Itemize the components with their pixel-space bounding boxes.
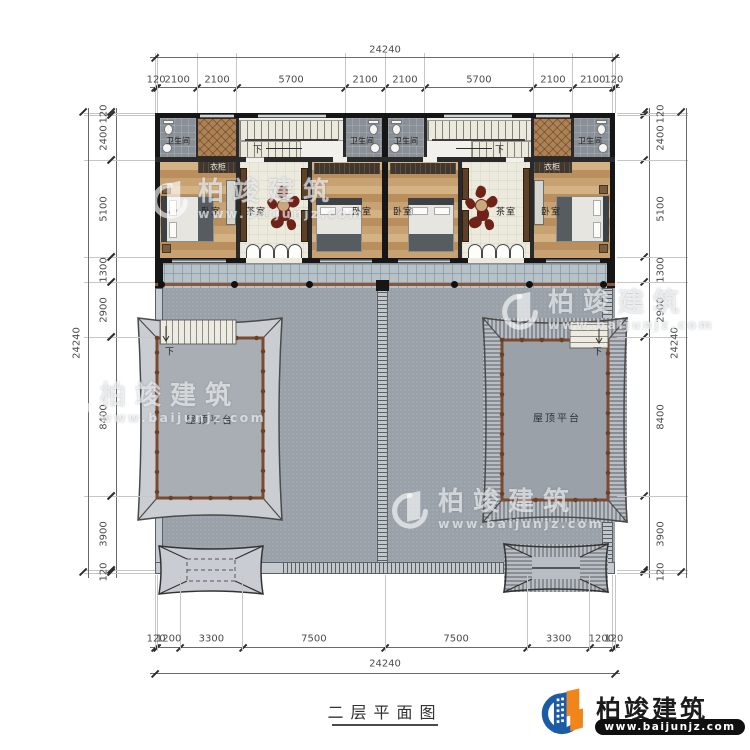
french-door — [496, 244, 510, 258]
nightstand — [162, 185, 171, 194]
dim-label: 2900 — [656, 297, 667, 322]
stairwell-1 — [239, 120, 345, 141]
french-door — [510, 244, 524, 258]
dim-label: 3900 — [656, 521, 667, 546]
bed-throw — [317, 234, 361, 251]
dim-label: 2100 — [204, 75, 229, 86]
column — [158, 281, 165, 288]
window — [444, 114, 512, 118]
room-label-tearoom: 茶室 — [246, 205, 266, 218]
roof-terrace-label: 屋顶平台 — [186, 412, 234, 427]
dim-line — [150, 57, 620, 58]
room-label-bathroom: 卫生间 — [394, 136, 418, 147]
dim-line — [84, 573, 155, 574]
tea-plant-decor — [268, 186, 300, 234]
dim-label: 24240 — [369, 659, 401, 670]
dim-line — [617, 282, 688, 283]
toilet-icon — [164, 124, 173, 135]
french-door — [482, 244, 496, 258]
brand-url-bar: www.baijunjz.com — [595, 719, 745, 735]
dim-label: 24240 — [670, 327, 681, 359]
column — [451, 281, 458, 288]
dim-label: 120 — [604, 75, 623, 86]
dim-label: 2100 — [164, 75, 189, 86]
partition — [458, 162, 462, 258]
wall-mid — [264, 157, 333, 162]
partition — [531, 118, 534, 157]
partition — [236, 162, 240, 258]
walkway-stub — [607, 263, 615, 290]
bedroom-3-closet — [390, 163, 456, 174]
dim-line — [617, 496, 688, 497]
dim-label: 120 — [99, 105, 110, 124]
dim-label: 5100 — [99, 196, 110, 221]
dim-line — [84, 496, 155, 497]
dim-label: 2400 — [99, 125, 110, 150]
porch-roof-left — [153, 538, 269, 600]
column — [306, 281, 313, 288]
floor-plan-canvas: 卫生间 卫生间 卫生间 卫生间 衣柜 衣柜 下 下 卧室 茶室 卧室 卧室 茶室… — [0, 0, 750, 750]
wardrobe-1 — [197, 118, 237, 157]
stairs-down-label: 下 — [495, 143, 505, 156]
dim-label: 7500 — [443, 634, 468, 645]
bed-headboard — [408, 198, 454, 205]
bed-pillow — [412, 207, 428, 215]
french-door — [246, 244, 260, 258]
bed-pillow — [169, 200, 177, 216]
wall-left — [155, 113, 160, 263]
dim-label: 5700 — [278, 75, 303, 86]
dim-label: 8400 — [99, 404, 110, 429]
dim-line — [424, 53, 425, 113]
dim-label: 1200 — [156, 634, 181, 645]
room-label-wardrobe: 衣柜 — [544, 162, 560, 173]
bedroom-2-closet — [314, 163, 380, 174]
dim-label: 120 — [604, 634, 623, 645]
window-glass — [546, 260, 600, 261]
column — [526, 281, 533, 288]
dim-label: 1300 — [99, 257, 110, 282]
window — [258, 114, 326, 118]
dim-label: 120 — [656, 105, 667, 124]
partition — [196, 118, 198, 157]
dim-label: 24240 — [369, 45, 401, 56]
window-glass — [398, 260, 450, 261]
nightstand — [162, 244, 171, 253]
window — [200, 114, 234, 118]
dim-label: 3900 — [99, 521, 110, 546]
bed-pillow — [593, 222, 601, 238]
brand-logo-icon — [534, 683, 592, 743]
dim-line — [84, 282, 155, 283]
french-door — [274, 244, 288, 258]
dim-label: 1300 — [656, 257, 667, 282]
tea-cabinet — [523, 168, 530, 242]
dim-label: 120 — [147, 75, 166, 86]
porch-roof-right — [498, 536, 614, 598]
bed-pillow — [434, 207, 450, 215]
bed-headboard — [161, 196, 167, 242]
bed-throw — [409, 234, 453, 251]
partition — [308, 162, 312, 258]
pavilion-down-label: 下 — [165, 345, 175, 358]
stair-rail-2 — [432, 139, 525, 141]
wall-mid — [437, 157, 506, 162]
dim-line — [527, 575, 528, 651]
dim-line — [236, 53, 237, 113]
dim-line — [84, 257, 155, 258]
roof-terrace-label: 屋顶平台 — [533, 410, 581, 425]
stairs-arrow — [266, 148, 302, 149]
dim-line — [649, 108, 650, 578]
wall-mid — [524, 157, 615, 162]
partition — [236, 118, 239, 157]
dim-label: 24240 — [72, 327, 83, 359]
dim-line — [84, 570, 155, 571]
french-door — [288, 244, 302, 258]
dim-line — [533, 53, 534, 113]
room-label-bathroom: 卫生间 — [350, 136, 374, 147]
dim-label: 2900 — [99, 297, 110, 322]
stairwell-1-lower — [239, 141, 301, 158]
window-glass — [320, 260, 372, 261]
dim-line — [572, 53, 573, 113]
wall-mid — [347, 157, 423, 162]
dim-line — [116, 108, 117, 578]
nightstand — [599, 185, 608, 194]
stairs-arrow — [456, 148, 492, 149]
tea-cabinet — [301, 168, 308, 200]
tv-cabinet — [534, 180, 544, 225]
wall-mid — [155, 157, 246, 162]
dim-label: 2100 — [580, 75, 605, 86]
room-label-bathroom: 卫生间 — [578, 136, 602, 147]
dim-line — [617, 570, 688, 571]
dim-line — [385, 575, 386, 651]
dim-label: 120 — [656, 562, 667, 581]
room-label-bedroom: 卧室 — [352, 205, 372, 218]
dim-line — [88, 108, 89, 578]
room-label-bedroom: 卧室 — [393, 205, 413, 218]
terrace-divider — [377, 290, 388, 566]
tea-plant-decor — [466, 186, 498, 234]
partition — [424, 118, 427, 157]
toilet-icon — [597, 124, 606, 135]
room-label-bedroom: 卧室 — [541, 205, 561, 218]
dim-label: 120 — [99, 562, 110, 581]
divider-pier — [376, 280, 389, 291]
column — [600, 281, 607, 288]
room-label-bedroom: 卧室 — [201, 205, 221, 218]
window-glass — [172, 260, 226, 261]
dim-line — [84, 160, 155, 161]
dim-line — [197, 53, 198, 113]
bed-pillow — [320, 207, 336, 215]
dim-line — [84, 113, 155, 114]
dim-label: 5100 — [656, 196, 667, 221]
dim-line — [686, 108, 687, 578]
dim-line — [150, 673, 620, 674]
nightstand — [599, 244, 608, 253]
wall-right — [610, 113, 615, 263]
tea-cabinet — [301, 210, 308, 242]
partition — [530, 162, 534, 258]
dim-line — [385, 53, 386, 113]
bed-headboard — [603, 196, 609, 242]
dim-line — [242, 575, 243, 651]
toilet-icon — [369, 124, 378, 135]
title-underline — [332, 724, 438, 726]
dim-label: 2100 — [392, 75, 417, 86]
dim-line — [617, 160, 688, 161]
bed-pillow — [169, 222, 177, 238]
french-door — [468, 244, 482, 258]
terrace-bottom-coping — [283, 562, 507, 574]
column — [231, 281, 238, 288]
dim-label: 2100 — [352, 75, 377, 86]
dim-label: 8400 — [656, 404, 667, 429]
dim-line — [617, 257, 688, 258]
room-label-bathroom: 卫生间 — [166, 136, 190, 147]
window — [536, 114, 570, 118]
dim-line — [84, 337, 155, 338]
stairs-down-label: 下 — [253, 143, 263, 156]
dim-label: 7500 — [301, 634, 326, 645]
dim-line — [84, 115, 155, 116]
dim-label: 3300 — [546, 634, 571, 645]
drawing-title: 二层平面图 — [327, 699, 442, 723]
dim-label: 2400 — [656, 125, 667, 150]
dim-label: 5700 — [466, 75, 491, 86]
french-door — [260, 244, 274, 258]
stairwell-2 — [427, 120, 533, 141]
partition — [571, 118, 574, 157]
pavilion-down-label: 下 — [593, 345, 603, 358]
bed-pillow — [593, 200, 601, 216]
dim-label: 3300 — [199, 634, 224, 645]
partition — [343, 118, 346, 157]
stair-rail-1 — [245, 139, 338, 141]
room-label-tearoom: 茶室 — [496, 205, 516, 218]
tv-cabinet — [226, 180, 236, 225]
toilet-icon — [392, 124, 401, 135]
room-label-wardrobe: 衣柜 — [210, 162, 226, 173]
dim-line — [345, 53, 346, 113]
wardrobe-2 — [533, 118, 573, 157]
dim-label: 2100 — [540, 75, 565, 86]
